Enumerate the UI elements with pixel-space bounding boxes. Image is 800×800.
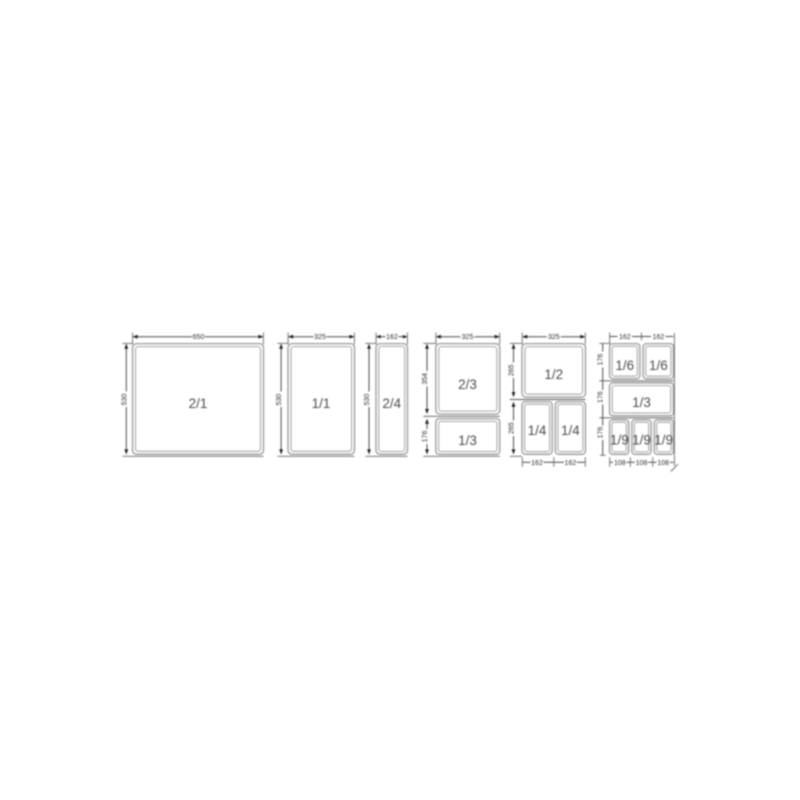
svg-text:1/9: 1/9 [610, 433, 629, 448]
svg-text:1/4: 1/4 [561, 423, 580, 438]
svg-text:1/9: 1/9 [632, 433, 651, 448]
svg-text:1/4: 1/4 [528, 423, 547, 438]
svg-text:176: 176 [598, 354, 605, 366]
svg-text:162: 162 [531, 460, 543, 467]
svg-text:2/4: 2/4 [382, 396, 401, 411]
svg-text:530: 530 [276, 394, 283, 406]
svg-text:176: 176 [598, 427, 605, 439]
svg-text:1/3: 1/3 [632, 395, 651, 410]
svg-text:2/1: 2/1 [189, 396, 208, 411]
svg-text:1/3: 1/3 [458, 433, 477, 448]
svg-text:162: 162 [386, 334, 398, 341]
svg-text:265: 265 [509, 364, 516, 376]
svg-text:176: 176 [598, 391, 605, 403]
svg-text:176: 176 [422, 431, 429, 443]
svg-text:354: 354 [422, 373, 429, 385]
svg-text:325: 325 [462, 334, 474, 341]
svg-text:530: 530 [121, 394, 128, 406]
svg-text:108: 108 [636, 460, 648, 467]
svg-text:1/9: 1/9 [654, 433, 673, 448]
svg-text:108: 108 [614, 460, 626, 467]
svg-text:1/2: 1/2 [544, 367, 563, 382]
svg-text:650: 650 [193, 334, 205, 341]
svg-text:1/6: 1/6 [649, 358, 668, 373]
svg-text:162: 162 [619, 334, 631, 341]
svg-text:162: 162 [565, 460, 577, 467]
svg-text:162: 162 [653, 334, 665, 341]
svg-text:1/1: 1/1 [312, 396, 331, 411]
svg-text:325: 325 [548, 334, 560, 341]
svg-text:1/6: 1/6 [615, 358, 634, 373]
svg-text:108: 108 [657, 460, 669, 467]
svg-text:325: 325 [314, 334, 326, 341]
svg-text:265: 265 [509, 422, 516, 434]
svg-text:530: 530 [364, 394, 371, 406]
svg-text:2/3: 2/3 [458, 377, 477, 392]
